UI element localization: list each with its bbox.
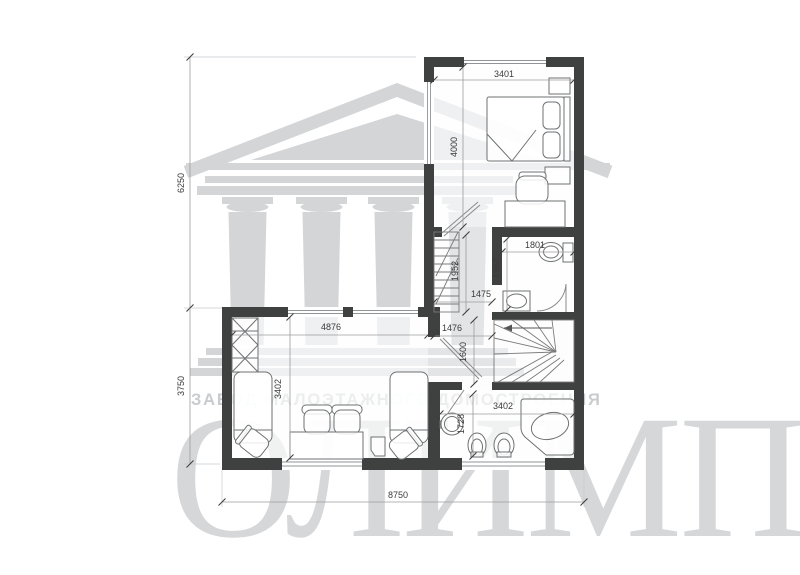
chair <box>334 410 360 434</box>
bed-headboard <box>564 97 570 161</box>
toilet-tank <box>563 243 573 262</box>
dim-label-3401: 3401 <box>494 69 514 79</box>
dim-label-4000: 4000 <box>449 137 459 157</box>
nightstand <box>545 167 570 184</box>
pillow <box>543 102 560 129</box>
chair <box>304 410 330 434</box>
dim-label-8750: 8750 <box>388 490 408 500</box>
pillow <box>543 132 560 158</box>
dim-label-1476: 1476 <box>442 323 462 333</box>
dim-label-1600: 1600 <box>458 342 468 362</box>
dim-label-3402-room: 3402 <box>273 379 283 399</box>
table <box>290 432 363 459</box>
desk <box>505 201 565 227</box>
floor-plan: 3401 4000 6250 3750 8750 1801 1952 19 <box>0 0 800 566</box>
dim-label-1952-wc: 1952 <box>491 258 501 278</box>
dim-label-1728: 1728 <box>456 414 466 434</box>
dim-label-1801: 1801 <box>525 240 545 250</box>
nightstand <box>371 437 385 456</box>
dim-label-3750: 3750 <box>176 376 186 396</box>
toilet-base <box>497 452 511 457</box>
dim-label-1952-stair: 1952 <box>450 261 460 281</box>
dim-label-1475: 1475 <box>471 289 491 299</box>
dim-label-4876: 4876 <box>321 322 341 332</box>
desk-chair <box>516 176 548 204</box>
dim-label-6250: 6250 <box>176 173 186 193</box>
wardrobe <box>232 318 258 372</box>
dim-label-3402-bath: 3402 <box>493 401 513 411</box>
